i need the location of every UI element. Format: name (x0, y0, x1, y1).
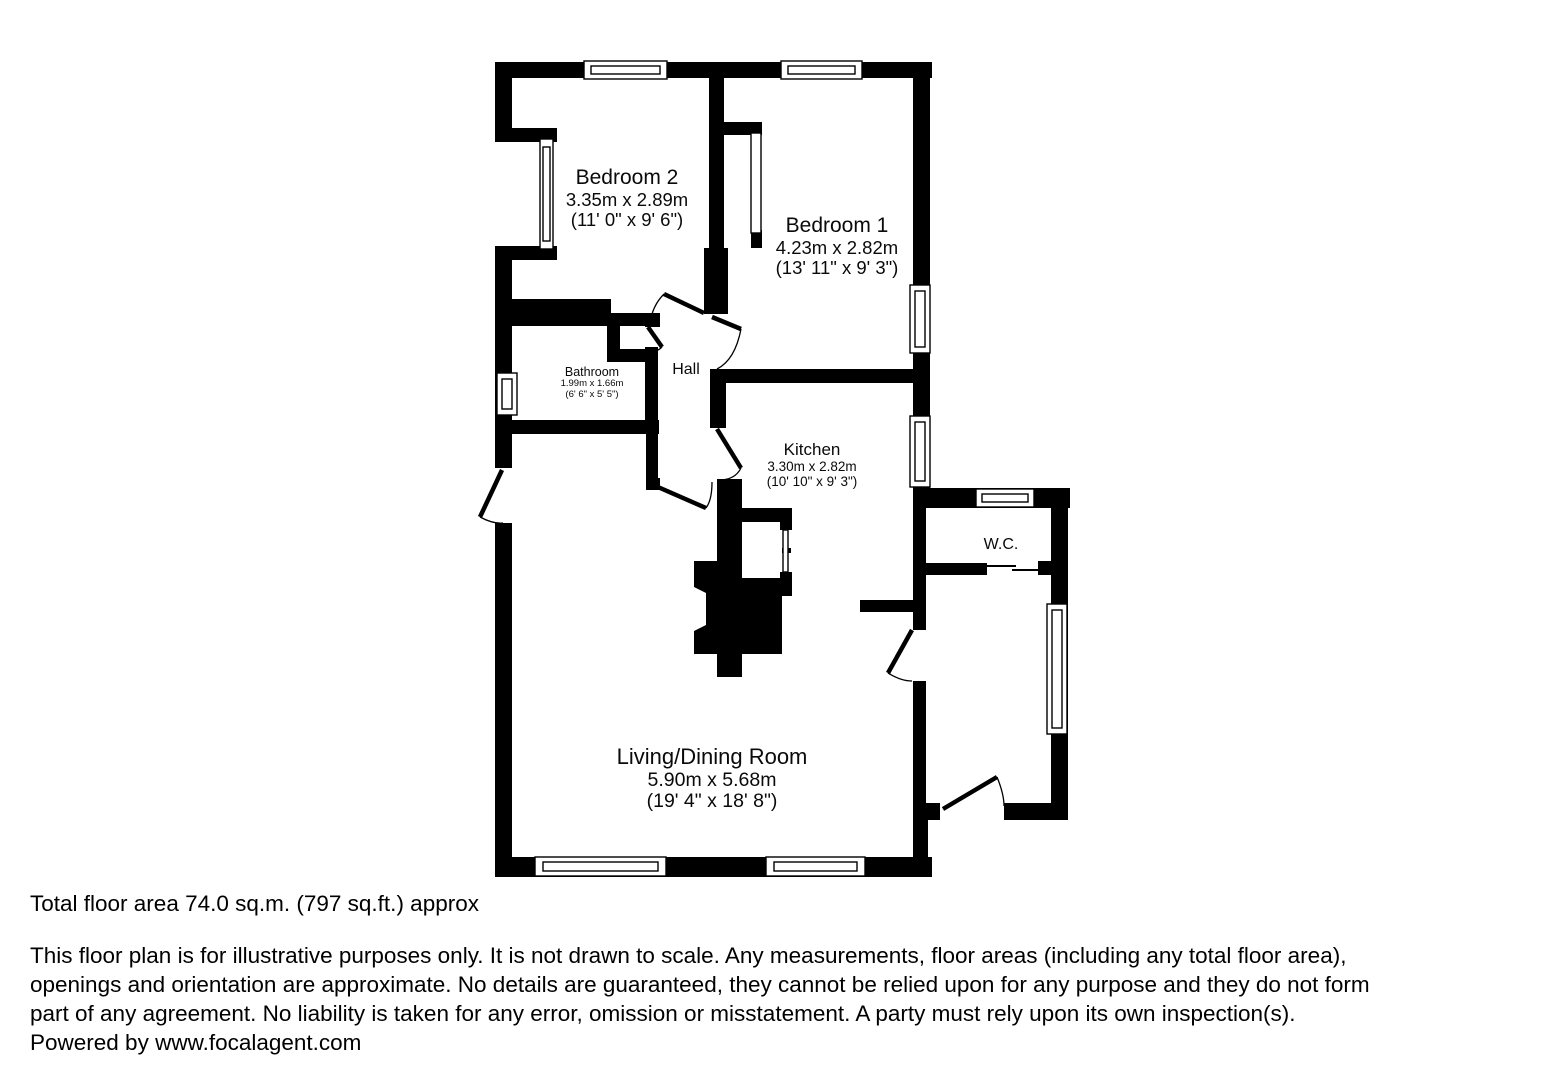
room-name: Bathroom (561, 365, 624, 379)
window (1047, 604, 1067, 734)
total-floor-area: Total floor area 74.0 sq.m. (797 sq.ft.)… (30, 891, 479, 917)
door (943, 777, 1004, 809)
door (888, 630, 912, 681)
disclaimer-line-3: part of any agreement. No liability is t… (30, 1001, 1296, 1027)
powered-by: Powered by www.focalagent.com (30, 1030, 361, 1056)
window (910, 416, 930, 487)
room-dimensions-metric: 4.23m x 2.82m (776, 238, 899, 259)
room-label-hall: Hall (672, 361, 700, 379)
door (712, 317, 741, 369)
window (910, 285, 930, 353)
room-dimensions-imperial: (19' 4" x 18' 8") (617, 791, 808, 813)
room-name: Living/Dining Room (617, 745, 808, 770)
room-dimensions-metric: 3.35m x 2.89m (566, 190, 688, 211)
window (535, 857, 666, 876)
window (497, 373, 517, 415)
room-name: Hall (672, 361, 700, 379)
window (976, 489, 1034, 507)
room-name: Bedroom 2 (566, 166, 688, 190)
room-label-bathroom: Bathroom 1.99m x 1.66m (6' 6" x 5' 5") (561, 365, 624, 400)
window (766, 857, 865, 876)
room-dimensions-metric: 3.30m x 2.82m (767, 459, 858, 474)
room-label-kitchen: Kitchen 3.30m x 2.82m (10' 10" x 9' 3") (767, 440, 858, 489)
floorplan-drawing (0, 0, 1544, 1080)
wc-sliding-door (987, 566, 1040, 570)
room-dimensions-imperial: (10' 10" x 9' 3") (767, 474, 858, 489)
room-label-living-dining: Living/Dining Room 5.90m x 5.68m (19' 4"… (617, 745, 808, 813)
window (781, 61, 862, 79)
room-dimensions-imperial: (11' 0" x 9' 6") (566, 210, 688, 231)
room-dimensions-metric: 5.90m x 5.68m (617, 770, 808, 792)
chimney-notch (694, 587, 706, 631)
cupboard-front (783, 530, 788, 572)
disclaimer-line-1: This floor plan is for illustrative purp… (30, 943, 1346, 969)
door (717, 429, 741, 480)
room-label-bedroom-1: Bedroom 1 4.23m x 2.82m (13' 11" x 9' 3"… (776, 214, 899, 279)
disclaimer-line-2: openings and orientation are approximate… (30, 972, 1370, 998)
room-dimensions-imperial: (13' 11" x 9' 3") (776, 258, 899, 279)
room-name: Kitchen (767, 440, 858, 459)
room-name: W.C. (984, 536, 1019, 554)
room-name: Bedroom 1 (776, 214, 899, 238)
door (651, 482, 712, 508)
floorplan-page: Bedroom 2 3.35m x 2.89m (11' 0" x 9' 6")… (0, 0, 1544, 1080)
window (584, 61, 667, 79)
room-dimensions-imperial: (6' 6" x 5' 5") (561, 390, 624, 401)
door (480, 470, 503, 523)
room-label-wc: W.C. (984, 536, 1019, 554)
window (540, 139, 553, 249)
room-label-bedroom-2: Bedroom 2 3.35m x 2.89m (11' 0" x 9' 6") (566, 166, 688, 231)
closet-front (751, 133, 761, 233)
